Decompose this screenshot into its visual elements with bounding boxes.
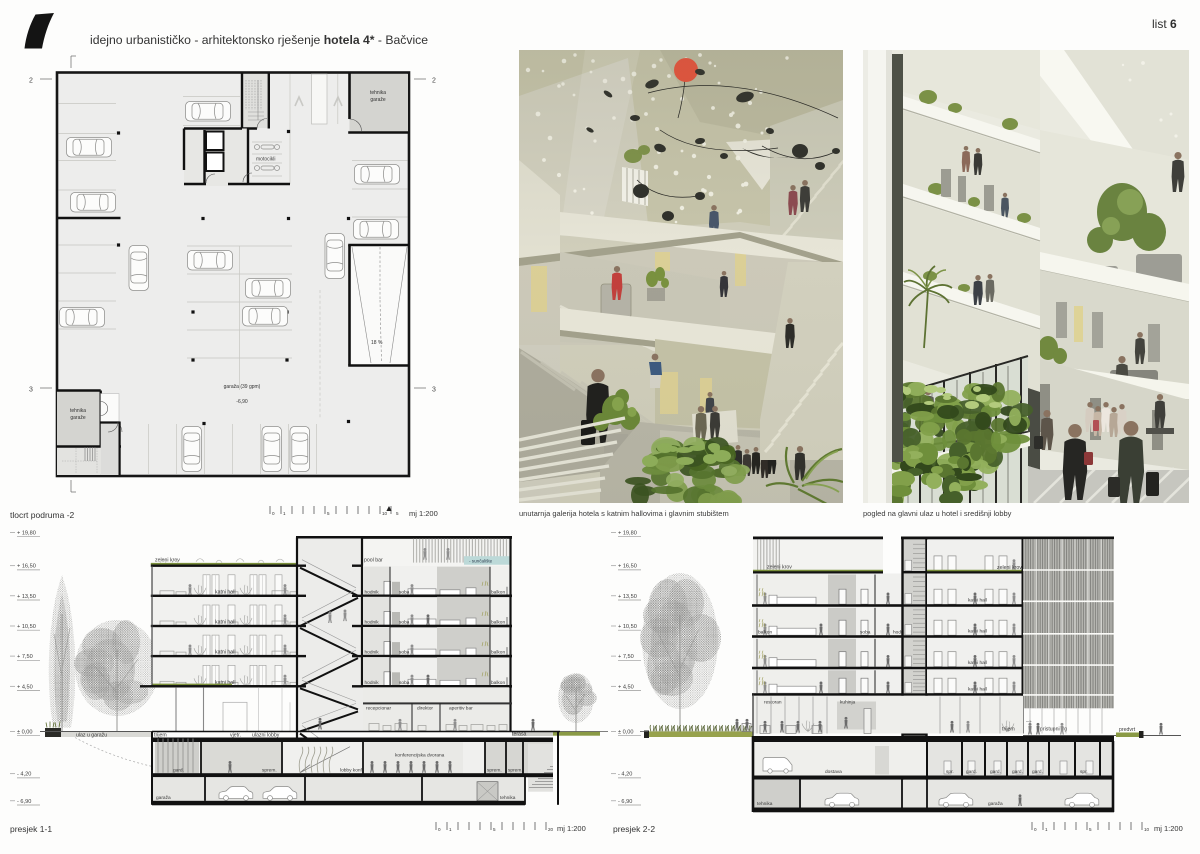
svg-text:pool bar: pool bar — [364, 558, 383, 564]
svg-text:10: 10 — [1144, 827, 1150, 832]
svg-text:zeleni krov: zeleni krov — [997, 565, 1022, 571]
svg-text:trijem: trijem — [1002, 727, 1015, 733]
svg-text:sprem.: sprem. — [262, 768, 277, 774]
svg-text:restoran: restoran — [764, 700, 782, 706]
svg-text:idejno urbanističko - arhitekt: idejno urbanističko - arhitektonsko rješ… — [90, 33, 428, 47]
svg-text:0: 0 — [438, 827, 441, 832]
svg-text:± 0,00: ± 0,00 — [17, 730, 33, 736]
svg-text:hodnik: hodnik — [365, 620, 380, 626]
svg-text:+ 19,80: + 19,80 — [17, 531, 36, 537]
svg-text:5: 5 — [1089, 827, 1092, 832]
svg-text:tehnika: tehnika — [70, 408, 86, 414]
svg-text:katni hall: katni hall — [215, 589, 235, 595]
svg-text:konferencijska dvorana: konferencijska dvorana — [395, 753, 445, 759]
svg-text:lobby konf.: lobby konf. — [340, 768, 363, 774]
svg-text:± 0,00: ± 0,00 — [618, 730, 634, 736]
svg-text:mj 1:200: mj 1:200 — [409, 509, 438, 518]
svg-text:+ 10,50: + 10,50 — [17, 624, 36, 630]
svg-text:garaže: garaže — [370, 97, 386, 103]
svg-text:+ 7,50: + 7,50 — [17, 654, 33, 660]
svg-text:katni hall: katni hall — [968, 629, 987, 635]
svg-text:20: 20 — [548, 827, 554, 832]
svg-text:zeleni krov: zeleni krov — [767, 565, 792, 571]
svg-text:+ 13,50: + 13,50 — [17, 594, 36, 600]
svg-text:soba: soba — [399, 589, 410, 595]
svg-text:+ 7,50: + 7,50 — [618, 654, 634, 660]
svg-text:- 6,90: - 6,90 — [618, 799, 632, 805]
svg-text:katni hall: katni hall — [215, 620, 235, 626]
svg-text:sprem.: sprem. — [508, 768, 523, 774]
svg-text:ulazni lobby: ulazni lobby — [252, 732, 280, 738]
svg-text:0: 0 — [1034, 827, 1037, 832]
svg-text:balkon: balkon — [491, 680, 505, 686]
svg-text:katni hall: katni hall — [215, 650, 235, 656]
svg-text:+ 16,50: + 16,50 — [17, 564, 36, 570]
svg-text:balkon: balkon — [758, 630, 772, 636]
svg-text:balkon: balkon — [491, 620, 505, 626]
svg-text:hodnik: hodnik — [365, 650, 380, 656]
svg-text:+ 10,50: + 10,50 — [618, 624, 637, 630]
svg-text:trijem: trijem — [154, 732, 167, 738]
svg-text:gard.: gard. — [1032, 769, 1043, 775]
svg-text:soba: soba — [399, 650, 410, 656]
svg-text:2: 2 — [432, 78, 436, 85]
svg-text:gard.: gard. — [173, 768, 184, 774]
svg-text:2: 2 — [29, 78, 33, 85]
svg-text:list 6: list 6 — [1152, 17, 1177, 31]
svg-text:-6,90: -6,90 — [236, 399, 248, 405]
svg-text:0: 0 — [272, 511, 275, 516]
svg-text:direktor: direktor — [417, 705, 433, 711]
svg-text:garaža (39 gpm): garaža (39 gpm) — [224, 384, 261, 390]
svg-text:5: 5 — [396, 511, 399, 516]
svg-text:garaže: garaže — [70, 415, 86, 421]
svg-text:tehnika: tehnika — [370, 90, 386, 96]
svg-text:soba: soba — [860, 630, 871, 636]
svg-text:+ 4,50: + 4,50 — [17, 684, 33, 690]
svg-text:soba: soba — [399, 680, 410, 686]
svg-text:mj 1:200: mj 1:200 — [557, 824, 586, 833]
svg-text:gard.: gard. — [1012, 769, 1023, 775]
svg-text:+ 19,80: + 19,80 — [618, 531, 637, 537]
svg-text:- 4,20: - 4,20 — [618, 772, 632, 778]
svg-text:pogled na glavni ulaz u hotel: pogled na glavni ulaz u hotel i središnj… — [863, 509, 1012, 518]
svg-text:kuhinja: kuhinja — [840, 700, 856, 706]
svg-text:tehnika: tehnika — [500, 795, 516, 801]
svg-text:tlocrt podruma -2: tlocrt podruma -2 — [10, 510, 75, 520]
svg-text:gard.: gard. — [966, 769, 977, 775]
svg-text:terasa: terasa — [512, 732, 527, 738]
svg-text:katni hall: katni hall — [968, 598, 987, 604]
svg-text:tehnika: tehnika — [757, 801, 773, 807]
svg-text:motocikli: motocikli — [256, 157, 275, 163]
svg-text:katni hall: katni hall — [968, 687, 987, 693]
svg-text:ulaz u garažu: ulaz u garažu — [76, 732, 107, 738]
svg-text:predvrt: predvrt — [1119, 727, 1136, 733]
svg-text:presjek 2-2: presjek 2-2 — [613, 824, 655, 834]
svg-text:spr.: spr. — [946, 769, 954, 775]
svg-text:- 4,20: - 4,20 — [17, 772, 31, 778]
svg-text:- 6,90: - 6,90 — [17, 799, 31, 805]
svg-text:10: 10 — [382, 511, 388, 516]
svg-text:1: 1 — [283, 511, 286, 516]
svg-text:hodnik: hodnik — [365, 589, 380, 595]
svg-text:balkon: balkon — [491, 589, 505, 595]
svg-text:3: 3 — [29, 387, 33, 394]
svg-text:vjetr.: vjetr. — [230, 732, 241, 738]
svg-text:sprem.: sprem. — [487, 768, 502, 774]
svg-text:recepcionar: recepcionar — [366, 705, 391, 711]
svg-text:garaža: garaža — [988, 801, 1003, 807]
svg-text:18 %: 18 % — [371, 340, 383, 346]
svg-text:+ 13,50: + 13,50 — [618, 594, 637, 600]
svg-text:soba: soba — [399, 620, 410, 626]
svg-text:1: 1 — [1045, 827, 1048, 832]
svg-text:+ 16,50: + 16,50 — [618, 564, 637, 570]
svg-text:gard.: gard. — [990, 769, 1001, 775]
svg-text:garaža: garaža — [156, 795, 171, 801]
svg-text:katni hall: katni hall — [968, 660, 987, 666]
svg-text:dostava: dostava — [825, 769, 842, 775]
svg-text:unutarnja galerija hotela s ka: unutarnja galerija hotela s katnim hallo… — [519, 509, 729, 518]
svg-text:aperitiv bar: aperitiv bar — [449, 705, 473, 711]
svg-text:3: 3 — [432, 387, 436, 394]
svg-text:hodnik: hodnik — [365, 680, 380, 686]
svg-text:5: 5 — [493, 827, 496, 832]
svg-text:- sunčalište: - sunčalište — [469, 559, 493, 564]
svg-text:1: 1 — [449, 827, 452, 832]
svg-text:presjek 1-1: presjek 1-1 — [10, 824, 52, 834]
svg-text:5: 5 — [327, 511, 330, 516]
svg-text:+ 4,50: + 4,50 — [618, 684, 634, 690]
svg-text:balkon: balkon — [491, 650, 505, 656]
svg-text:spr.: spr. — [1080, 769, 1088, 775]
svg-text:mj 1:200: mj 1:200 — [1154, 824, 1183, 833]
